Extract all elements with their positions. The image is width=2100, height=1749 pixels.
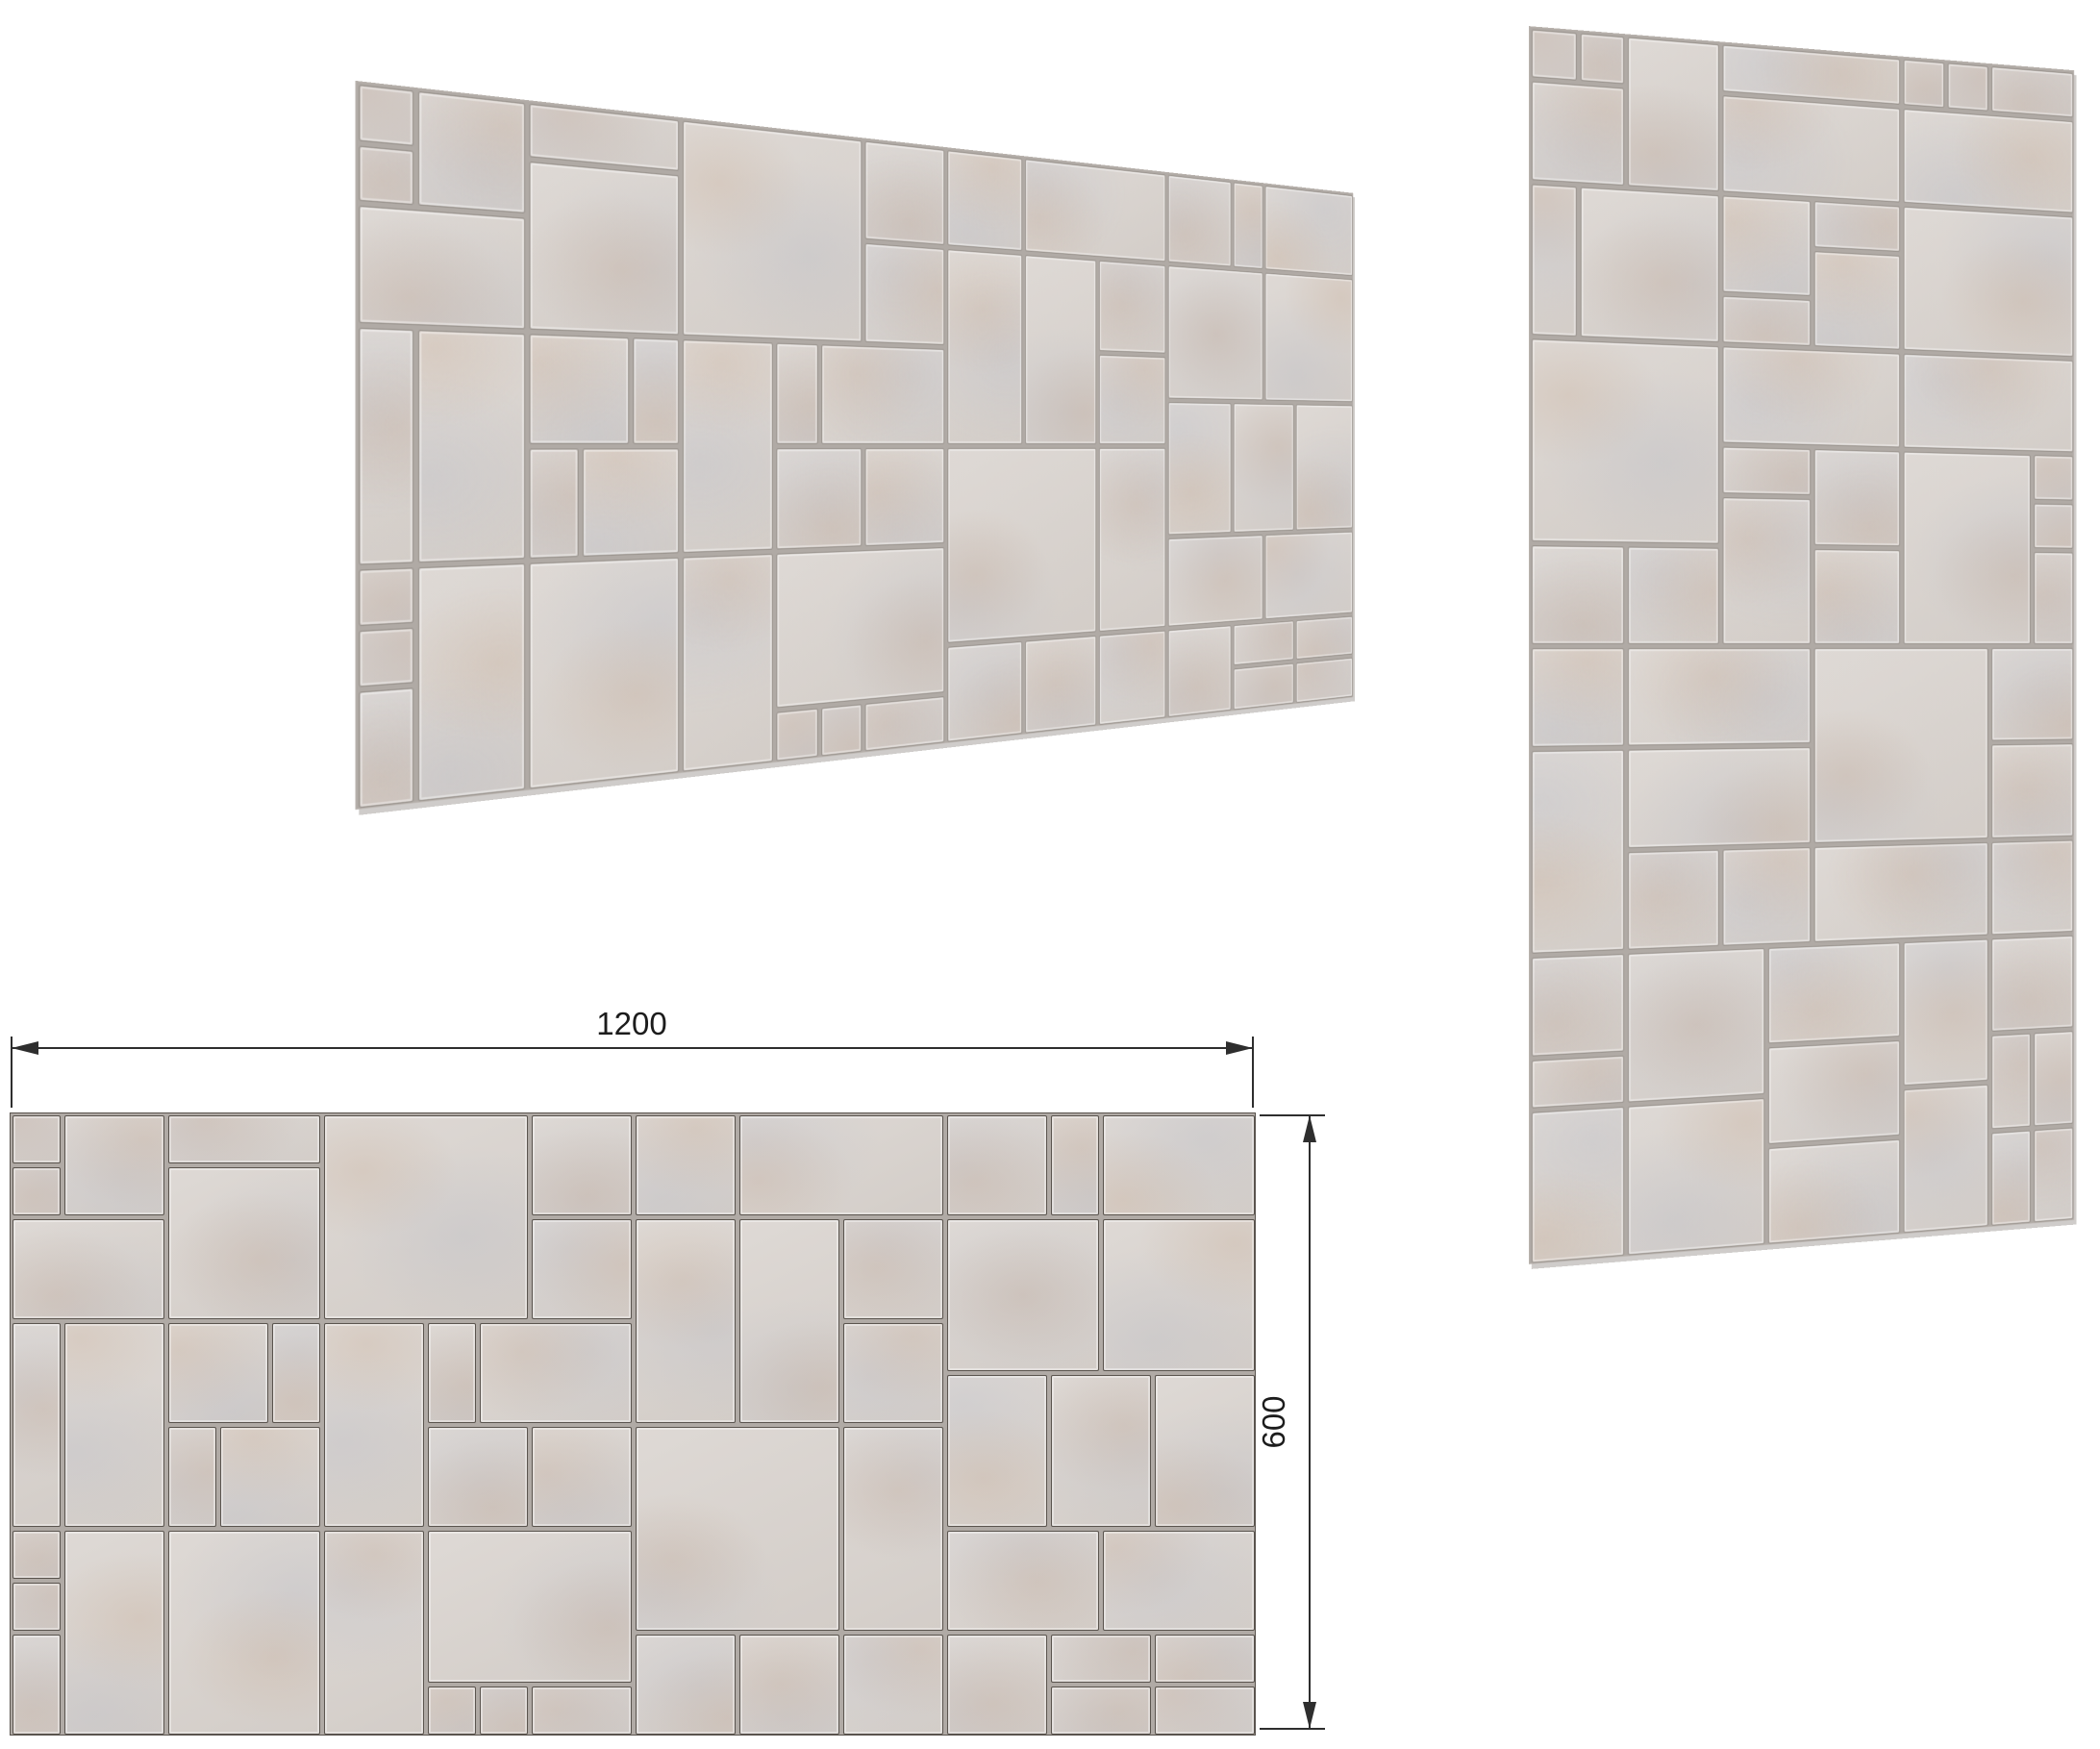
panel-tile xyxy=(634,337,679,444)
panel-tile xyxy=(1155,1635,1255,1683)
panel-tile xyxy=(1904,109,2073,213)
panel-tile xyxy=(530,104,680,171)
panel-tile xyxy=(1099,630,1165,725)
panel-tile xyxy=(1168,625,1232,717)
panel-tile xyxy=(324,1323,424,1527)
panel-tile xyxy=(1234,620,1293,665)
panel-tile xyxy=(12,1583,61,1631)
panel-tile xyxy=(1532,1056,1625,1109)
acoustic-panel-portrait xyxy=(1529,26,2074,1264)
panel-tile xyxy=(1103,1115,1255,1215)
panel-tile xyxy=(1155,1687,1255,1735)
panel-tile xyxy=(1722,346,1900,448)
panel-tile xyxy=(947,250,1022,445)
panel-tile xyxy=(1991,936,2073,1032)
panel-tile xyxy=(428,1687,476,1735)
panel-tile xyxy=(864,448,944,546)
panel-tile xyxy=(1025,255,1095,444)
panel-tile xyxy=(480,1687,528,1735)
panel-tile xyxy=(2034,1127,2073,1222)
panel-tile xyxy=(428,1427,528,1527)
height-dimension-label: 600 xyxy=(1256,1395,1291,1448)
panel-tile xyxy=(636,1427,839,1631)
panel-tile xyxy=(1532,1107,1625,1263)
panel-tile xyxy=(821,344,944,444)
panel-tile xyxy=(1296,615,1353,660)
acoustic-panel-front xyxy=(10,1112,1256,1736)
panel-tile xyxy=(1234,663,1293,710)
panel-tile xyxy=(1532,954,1625,1057)
panel-tile xyxy=(1532,184,1577,337)
panel-tile xyxy=(1051,1115,1099,1215)
panel-tile xyxy=(1532,545,1625,644)
panel-tile xyxy=(1814,449,1901,546)
panel-tile xyxy=(12,1323,61,1527)
panel-tile xyxy=(428,1323,476,1423)
panel-tile xyxy=(1051,1635,1151,1683)
panel-tile xyxy=(1051,1375,1151,1527)
panel-tile xyxy=(1099,354,1165,444)
panel-tile xyxy=(843,1427,943,1631)
perspective-view-portrait xyxy=(1513,49,2100,1241)
width-dimension-label: 1200 xyxy=(596,1006,666,1041)
panel-tile xyxy=(1722,296,1811,346)
panel-tile xyxy=(530,162,680,336)
panel-tile xyxy=(1768,942,1900,1044)
panel-tile xyxy=(1234,404,1293,534)
panel-tile xyxy=(1580,34,1624,85)
panel-tile xyxy=(1814,842,1988,942)
panel-tile xyxy=(1580,187,1718,342)
panel-tile xyxy=(1103,1219,1255,1371)
panel-tile xyxy=(12,1219,164,1319)
panel-tile xyxy=(324,1115,528,1319)
panel-tile xyxy=(12,1167,61,1215)
panel-tile xyxy=(64,1531,164,1735)
panel-tile xyxy=(636,1115,736,1215)
panel-tile xyxy=(1991,66,2073,117)
panel-tile xyxy=(64,1323,164,1527)
technical-drawing-canvas: 1200 600 xyxy=(0,0,2100,1749)
panel-tile xyxy=(1532,648,1625,747)
panel-tile xyxy=(168,1167,320,1319)
panel-tile xyxy=(359,85,413,146)
panel-tile xyxy=(168,1323,268,1423)
panel-tile xyxy=(947,1375,1047,1527)
panel-tile xyxy=(1904,452,2031,644)
panel-tile xyxy=(1991,1130,2031,1226)
panel-tile xyxy=(168,1531,320,1735)
panel-tile xyxy=(1168,265,1262,400)
panel-tile xyxy=(1168,175,1232,267)
panel-tile xyxy=(220,1427,320,1527)
panel-tile xyxy=(1103,1531,1255,1631)
panel-tile xyxy=(1628,37,1718,192)
panel-tile xyxy=(417,91,525,214)
panel-tile xyxy=(636,1635,736,1735)
panel-tile xyxy=(1991,839,2073,935)
panel-tile xyxy=(1991,1034,2031,1129)
panel-tile xyxy=(272,1323,320,1423)
panel-tile xyxy=(947,1219,1099,1371)
panel-tile xyxy=(530,448,579,559)
panel-tile xyxy=(359,628,413,687)
panel-tile xyxy=(947,1635,1047,1735)
panel-tile xyxy=(1296,658,1353,703)
panel-tile xyxy=(1904,1085,1987,1233)
panel-tile xyxy=(2034,504,2073,549)
panel-tile xyxy=(1025,159,1165,262)
panel-tile xyxy=(532,1687,632,1735)
panel-tile xyxy=(1722,497,1811,644)
acoustic-panel-landscape xyxy=(356,81,1354,810)
panel-tile xyxy=(1904,60,1944,108)
arrowhead-bottom-icon xyxy=(1303,1702,1316,1729)
panel-tile xyxy=(1991,744,2073,838)
panel-tile xyxy=(1814,648,1988,843)
panel-tile xyxy=(1099,261,1165,353)
panel-tile xyxy=(1814,201,1901,252)
panel-tile xyxy=(683,339,773,554)
panel-tile xyxy=(843,1323,943,1423)
panel-tile xyxy=(777,547,944,708)
panel-tile xyxy=(12,1635,61,1735)
panel-tile xyxy=(532,1115,632,1215)
panel-tile xyxy=(2034,456,2073,501)
panel-tile xyxy=(582,448,679,557)
panel-tile xyxy=(1265,532,1353,619)
panel-tile xyxy=(168,1115,320,1163)
panel-tile xyxy=(947,448,1095,643)
arrowhead-top-icon xyxy=(1303,1115,1316,1142)
panel-tile xyxy=(1234,182,1262,269)
panel-tile xyxy=(530,334,630,444)
panel-tile xyxy=(1265,273,1353,402)
panel-tile xyxy=(777,709,818,762)
panel-tile xyxy=(2034,552,2073,644)
panel-tile xyxy=(1296,405,1353,531)
arrowhead-right-icon xyxy=(1226,1041,1253,1055)
panel-tile xyxy=(1265,186,1353,276)
panel-tile xyxy=(843,1635,943,1735)
panel-tile xyxy=(947,150,1022,251)
panel-tile xyxy=(739,1635,839,1735)
panel-tile xyxy=(683,121,862,342)
panel-tile xyxy=(1051,1687,1151,1735)
panel-tile xyxy=(864,243,944,344)
panel-tile xyxy=(947,1531,1099,1631)
panel-tile xyxy=(777,342,818,444)
panel-tile xyxy=(864,696,944,751)
panel-tile xyxy=(1904,938,1987,1086)
panel-tile xyxy=(1814,251,1901,350)
panel-tile xyxy=(1904,207,2073,357)
panel-tile xyxy=(417,563,525,801)
panel-tile xyxy=(1532,29,1577,80)
panel-tile xyxy=(1628,849,1718,949)
panel-tile xyxy=(843,1219,943,1319)
panel-tile xyxy=(777,448,862,550)
arrowhead-left-icon xyxy=(12,1041,38,1055)
panel-tile xyxy=(1628,747,1811,847)
panel-tile xyxy=(168,1427,216,1527)
panel-tile xyxy=(359,206,525,329)
panel-tile xyxy=(947,641,1022,742)
panel-tile xyxy=(532,1219,632,1319)
panel-tile xyxy=(1722,447,1811,495)
front-view xyxy=(10,1112,1256,1736)
panel-tile xyxy=(1814,549,1901,644)
panel-tile xyxy=(2034,1031,2073,1126)
panel-tile xyxy=(1532,81,1625,186)
panel-tile xyxy=(1099,448,1165,632)
panel-tile xyxy=(359,145,413,205)
panel-tile xyxy=(1722,95,1900,203)
width-dimension: 1200 xyxy=(12,1006,1253,1108)
panel-tile xyxy=(12,1115,61,1163)
panel-tile xyxy=(1628,546,1718,644)
panel-tile xyxy=(480,1323,632,1423)
panel-tile xyxy=(1155,1375,1255,1527)
panel-tile xyxy=(683,554,773,771)
panel-tile xyxy=(1768,1138,1900,1243)
panel-tile xyxy=(739,1115,943,1215)
panel-tile xyxy=(1991,648,2073,741)
panel-tile xyxy=(1722,45,1900,105)
panel-tile xyxy=(1532,338,1719,543)
panel-tile xyxy=(1628,948,1764,1103)
panel-tile xyxy=(12,1531,61,1579)
panel-tile xyxy=(359,687,413,809)
panel-tile xyxy=(359,568,413,626)
panel-tile xyxy=(324,1531,424,1735)
panel-tile xyxy=(1628,648,1811,746)
panel-tile xyxy=(1168,536,1262,627)
panel-tile xyxy=(1025,636,1095,734)
panel-tile xyxy=(864,141,944,246)
panel-tile xyxy=(1628,1098,1764,1255)
panel-tile xyxy=(739,1219,839,1423)
perspective-view-landscape xyxy=(349,147,1541,743)
panel-tile xyxy=(1904,354,2073,453)
panel-tile xyxy=(1722,195,1811,296)
panel-tile xyxy=(417,330,525,563)
panel-tile xyxy=(1722,847,1811,946)
panel-tile xyxy=(1532,750,1625,954)
panel-tile xyxy=(530,558,680,789)
panel-tile xyxy=(1948,62,1988,111)
panel-tile xyxy=(947,1115,1047,1215)
panel-tile xyxy=(64,1115,164,1215)
panel-tile xyxy=(428,1531,632,1683)
panel-tile xyxy=(821,705,862,757)
panel-tile xyxy=(1768,1040,1900,1143)
height-dimension: 600 xyxy=(1256,1115,1325,1729)
panel-tile xyxy=(532,1427,632,1527)
panel-tile xyxy=(636,1219,736,1423)
panel-tile xyxy=(1168,402,1232,535)
panel-tile xyxy=(359,327,413,565)
